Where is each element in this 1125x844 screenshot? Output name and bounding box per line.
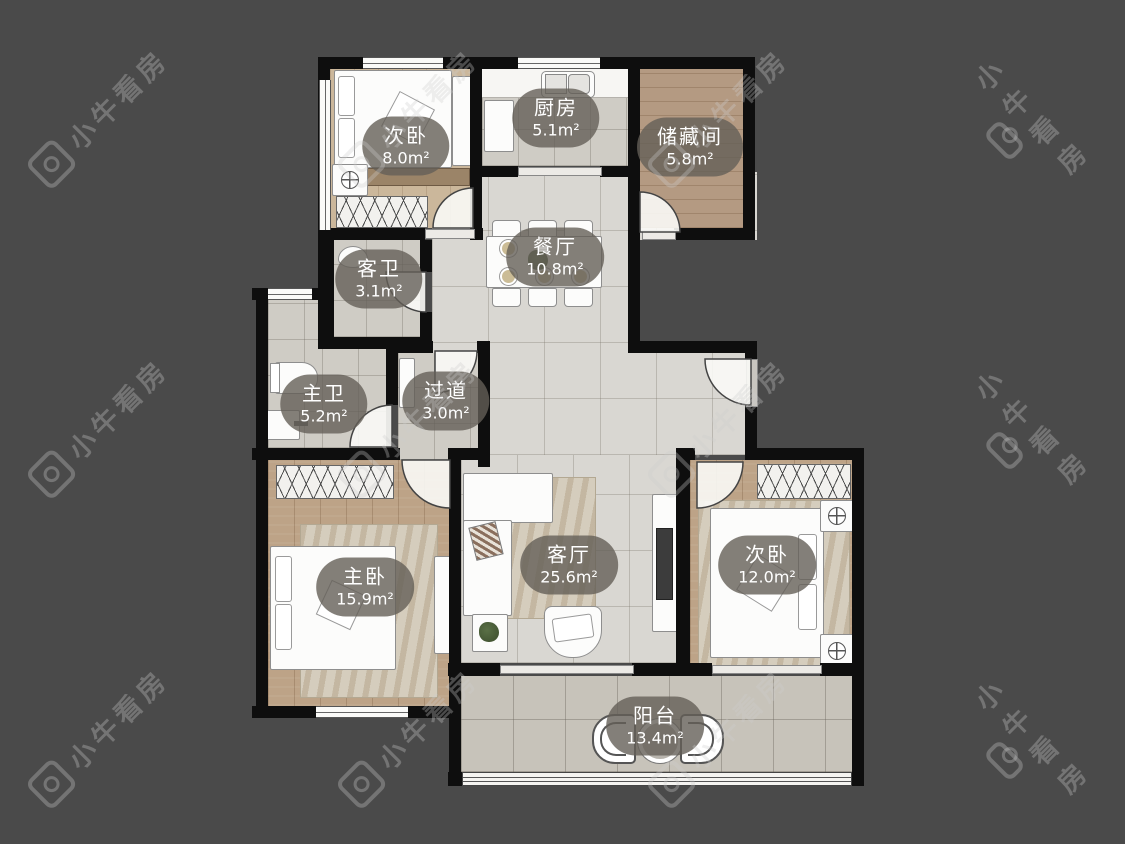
threshold-storage-door <box>642 230 676 240</box>
wall <box>743 57 755 240</box>
room-area: 12.0m² <box>738 568 796 588</box>
niu-logo-icon <box>334 757 388 811</box>
pillow <box>338 118 355 158</box>
dining-chair <box>492 288 521 307</box>
watermark-text: 小牛看房 <box>964 336 1118 490</box>
wall <box>745 448 864 460</box>
watermark: 小牛看房 <box>941 336 1118 513</box>
closet-hatch-master <box>276 465 394 499</box>
room-area: 13.4m² <box>626 729 684 749</box>
dining-chair <box>564 288 593 307</box>
slider-bedroom-balcony <box>712 665 822 674</box>
sofa-chaise <box>463 473 553 523</box>
niu-logo-icon <box>983 429 1026 472</box>
room-area: 5.1m² <box>532 121 579 141</box>
niu-logo-icon <box>24 447 78 501</box>
ceiling-fan-icon <box>341 171 359 189</box>
label-living: 客厅 25.6m² <box>520 536 618 595</box>
lamp-icon <box>828 507 846 525</box>
label-dining: 餐厅 10.8m² <box>506 228 604 287</box>
watermark: 小牛看房 <box>24 39 176 191</box>
room-name: 客厅 <box>547 543 591 568</box>
room-name: 次卧 <box>745 543 789 568</box>
room-area: 8.0m² <box>382 149 429 169</box>
watermark-text: 小牛看房 <box>964 646 1118 800</box>
wall <box>470 57 482 240</box>
wall <box>628 341 757 353</box>
niu-logo-icon <box>983 739 1026 782</box>
wall <box>449 455 461 786</box>
wall <box>420 240 432 272</box>
room-name: 厨房 <box>534 96 578 121</box>
threshold-bedroom-top-door <box>425 229 475 239</box>
niu-logo-icon <box>24 757 78 811</box>
room-area: 15.9m² <box>336 590 394 610</box>
wall <box>252 448 400 460</box>
dining-chair <box>528 288 557 307</box>
room-area: 5.8m² <box>666 150 713 170</box>
wall <box>676 448 690 676</box>
room-name: 过道 <box>424 379 468 404</box>
niu-logo-icon <box>24 137 78 191</box>
bay-window-master <box>316 706 408 718</box>
niu-logo-icon <box>983 119 1026 162</box>
room-area: 25.6m² <box>540 568 598 588</box>
wall <box>850 772 864 786</box>
balcony-railing <box>462 772 852 786</box>
wall <box>448 663 500 676</box>
label-balcony: 阳台 13.4m² <box>606 697 704 756</box>
slider-living-balcony <box>500 665 634 674</box>
room-name: 阳台 <box>633 704 677 729</box>
wall <box>628 57 640 353</box>
wall <box>674 228 755 240</box>
label-bedroom-top: 次卧 8.0m² <box>362 117 449 176</box>
room-area: 5.2m² <box>300 407 347 427</box>
label-storage: 储藏间 5.8m² <box>637 118 743 177</box>
wall <box>820 663 864 676</box>
room-name: 餐厅 <box>533 235 577 260</box>
room-name: 储藏间 <box>657 125 723 150</box>
watermark: 小牛看房 <box>24 659 176 811</box>
outdoor-notch <box>640 240 757 341</box>
window-bedroom-top <box>363 57 443 69</box>
label-hallway: 过道 3.0m² <box>402 372 489 431</box>
room-name: 客卫 <box>357 257 401 282</box>
closet-hatch-right <box>757 464 851 499</box>
watermark-text: 小牛看房 <box>58 39 176 157</box>
toilet-tank <box>270 363 280 393</box>
window-kitchen <box>518 57 600 69</box>
stove <box>484 100 514 152</box>
entry-door-leaf <box>746 359 758 407</box>
wall <box>745 341 757 359</box>
label-master-bath: 主卫 5.2m² <box>280 375 367 434</box>
watermark: 小牛看房 <box>941 646 1118 823</box>
watermark-text: 小牛看房 <box>58 349 176 467</box>
threshold-kitchen <box>518 167 602 176</box>
room-name: 主卧 <box>343 565 387 590</box>
wall <box>386 347 398 405</box>
watermark-text: 小牛看房 <box>58 659 176 777</box>
pillow <box>275 556 292 602</box>
wall <box>852 448 864 786</box>
room-name: 主卫 <box>302 382 346 407</box>
room-name: 次卧 <box>384 124 428 149</box>
window-bedroom-left <box>319 80 331 230</box>
label-master-bedroom: 主卧 15.9m² <box>316 558 414 617</box>
label-kitchen: 厨房 5.1m² <box>512 89 599 148</box>
label-guest-bath: 客卫 3.1m² <box>335 250 422 309</box>
lamp-icon <box>828 642 846 660</box>
floorplan-canvas: 次卧 8.0m² 厨房 5.1m² 储藏间 5.8m² 餐厅 10.8m² 客卫… <box>0 0 1125 844</box>
closet-hatch-top <box>336 196 428 228</box>
wall <box>600 166 640 177</box>
wall <box>256 288 268 718</box>
wall <box>318 228 425 240</box>
pillow <box>338 76 355 116</box>
label-bedroom-right: 次卧 12.0m² <box>718 536 816 595</box>
window-master-bath <box>268 288 312 300</box>
watermark: 小牛看房 <box>941 26 1118 203</box>
wall <box>476 166 518 177</box>
wall <box>448 772 462 786</box>
room-area: 10.8m² <box>526 260 584 280</box>
living-plant <box>479 622 499 642</box>
watermark-text: 小牛看房 <box>964 26 1118 180</box>
wall <box>632 663 712 676</box>
watermark: 小牛看房 <box>24 349 176 501</box>
room-area: 3.1m² <box>355 282 402 302</box>
pillow <box>798 584 817 630</box>
tv-screen <box>656 528 673 600</box>
room-area: 3.0m² <box>422 404 469 424</box>
pillow <box>275 604 292 650</box>
